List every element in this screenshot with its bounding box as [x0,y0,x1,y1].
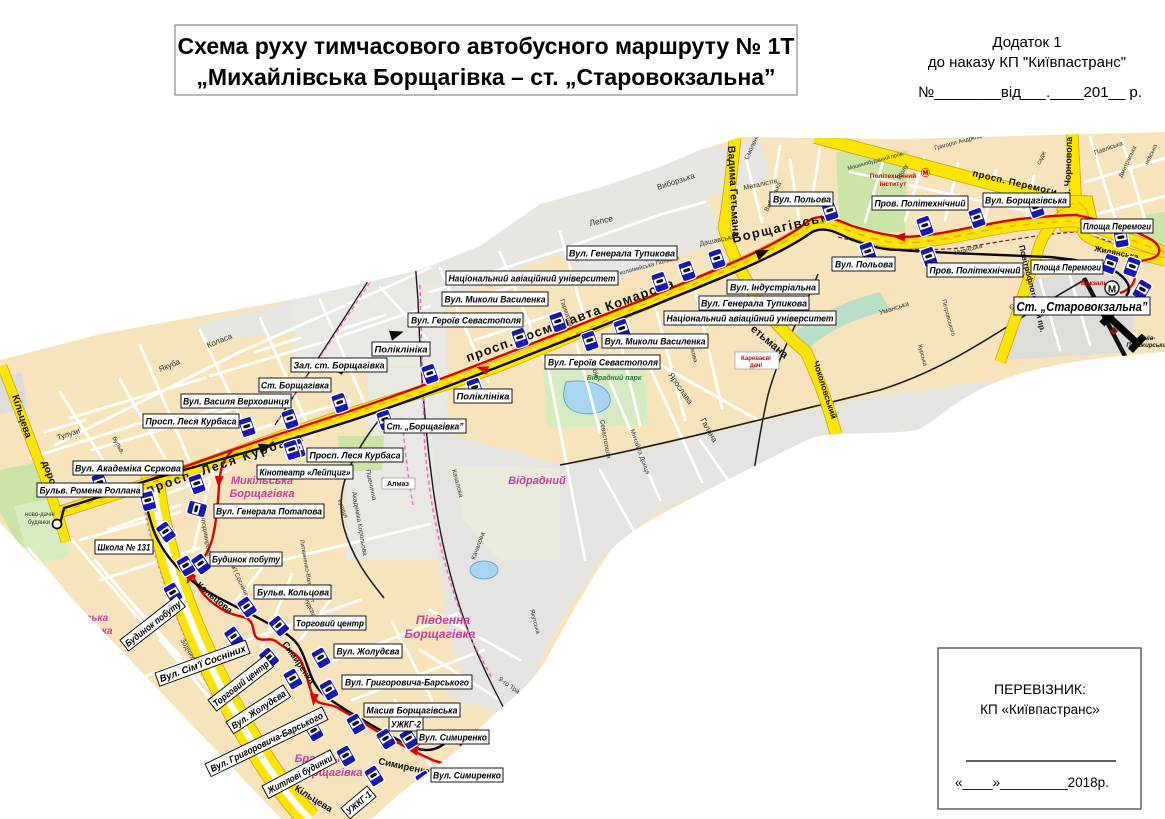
svg-text:ПЕРЕВІЗНИК:: ПЕРЕВІЗНИК: [994,681,1086,697]
svg-text:«____»_________2018р.: «____»_________2018р. [955,775,1109,790]
svg-text:Кареваєві: Кареваєві [741,356,771,362]
svg-text:вка: вка [96,626,113,637]
svg-text:Національний авіаційний універ: Національний авіаційний університет [667,314,834,325]
svg-text:Бульв. Кольцова: Бульв. Кольцова [257,588,329,599]
svg-text:Кінотеатр «Лейпциг»: Кінотеатр «Лейпциг» [260,468,351,479]
svg-text:Поліклініка: Поліклініка [375,345,428,356]
svg-text:до наказу КП "Київпастранс": до наказу КП "Київпастранс" [928,54,1126,71]
svg-text:Вул. Симиренко: Вул. Симиренко [419,733,487,744]
svg-text:Торговий центр: Торговий центр [296,619,364,630]
svg-text:Вул. Героїв Севастополя: Вул. Героїв Севастополя [411,316,521,327]
svg-text:М: М [1108,285,1116,296]
svg-text:Бульв. Ромена Роллана: Бульв. Ромена Роллана [40,486,141,497]
svg-text:Площа Перемоги: Площа Перемоги [1033,263,1101,274]
svg-text:Борщагівка: Борщагівка [405,627,476,641]
svg-text:Вул. Генерала Тупикова: Вул. Генерала Тупикова [701,299,807,310]
svg-text:Просп. Леся Курбаса: Просп. Леся Курбаса [146,417,237,428]
svg-text:Поліклініка: Поліклініка [457,392,510,403]
svg-text:Відрадний парк: Відрадний парк [587,374,642,382]
svg-text:Вул. Симиренко: Вул. Симиренко [433,771,501,782]
svg-text:Національний авіаційний універ: Національний авіаційний університет [449,274,616,285]
svg-text:Вул. Польова: Вул. Польова [773,195,831,206]
svg-text:Ст. „Борщагівка”: Ст. „Борщагівка” [387,422,464,433]
svg-text:Алмаз: Алмаз [387,481,410,488]
svg-text:Вул. Борщагівська: Вул. Борщагівська [985,196,1067,207]
svg-text:Школа № 131: Школа № 131 [98,543,151,554]
svg-text:Відрадний: Відрадний [508,475,566,487]
svg-text:Просп. Леся Курбаса: Просп. Леся Курбаса [310,451,401,462]
svg-text:Вул. Героїв Севастополя: Вул. Героїв Севастополя [548,358,658,369]
svg-text:Вул. Василя Верховинця: Вул. Василя Верховинця [183,397,289,408]
svg-text:Ⓜ: Ⓜ [921,167,930,178]
svg-text:Вул. Миколи Василенка: Вул. Миколи Василенка [445,295,546,306]
svg-text:дачі: дачі [750,363,762,369]
svg-text:інститут: інститут [880,180,907,188]
svg-text:Борщагівка: Борщагівка [229,488,294,500]
svg-text:Площа Перемоги: Площа Перемоги [1083,222,1151,233]
svg-text:ново-дачні: ново-дачні [25,512,55,518]
svg-text:Масив Борщагівська: Масив Борщагівська [367,706,458,717]
svg-text:Вул. Генерала Потапова: Вул. Генерала Потапова [216,507,322,518]
svg-text:Вул. Миколи Василенка: Вул. Миколи Василенка [605,337,706,348]
svg-text:№________від___.____201__ р.: №________від___.____201__ р. [918,84,1142,101]
svg-text:УЖКГ-2: УЖКГ-2 [391,720,422,731]
svg-text:Юлії...: Юлії... [678,519,688,536]
svg-text:Пров. Політехнічний: Пров. Політехнічний [875,199,966,210]
svg-text:КП «Київпастранс»: КП «Київпастранс» [980,702,1100,717]
svg-text:Зал. ст. Борщагівка: Зал. ст. Борщагівка [294,361,385,372]
svg-text:Схема руху тимчасового автобус: Схема руху тимчасового автобусного маршр… [178,33,795,59]
svg-text:Вул. Академіка Сєркова: Вул. Академіка Сєркова [75,464,181,475]
svg-text:Будинок побуту: Будинок побуту [212,555,281,566]
svg-text:Вул. Індустріальна: Вул. Індустріальна [730,283,816,294]
svg-text:Вул. Польова: Вул. Польова [835,260,893,271]
svg-text:Вацлава Гавела: Вацлава Гавела [743,478,769,529]
svg-text:Ст. „Старовокзальна”: Ст. „Старовокзальна” [1017,299,1148,314]
svg-text:Пров. Політехнічний: Пров. Політехнічний [930,266,1021,277]
svg-text:Вул. Жолудєва: Вул. Жолудєва [337,647,400,658]
svg-text:Вул. Григоровича-Барського: Вул. Григоровича-Барського [345,678,469,689]
svg-text:„Михайлівська Борщагівка – ст.: „Михайлівська Борщагівка – ст. „Старовок… [196,64,775,90]
svg-text:Додаток 1: Додаток 1 [992,34,1061,51]
svg-text:Політехнічний: Політехнічний [870,172,916,180]
svg-text:Київ-: Київ- [1141,336,1156,342]
svg-text:Південна: Південна [416,613,471,627]
svg-text:Вул. Генерала Тупикова: Вул. Генерала Тупикова [569,249,675,260]
svg-text:Пасажирський: Пасажирський [1126,342,1165,349]
svg-text:ська: ська [86,613,109,624]
svg-text:будянки: будянки [28,520,50,526]
svg-text:Ст. Борщагівка: Ст. Борщагівка [261,381,329,392]
